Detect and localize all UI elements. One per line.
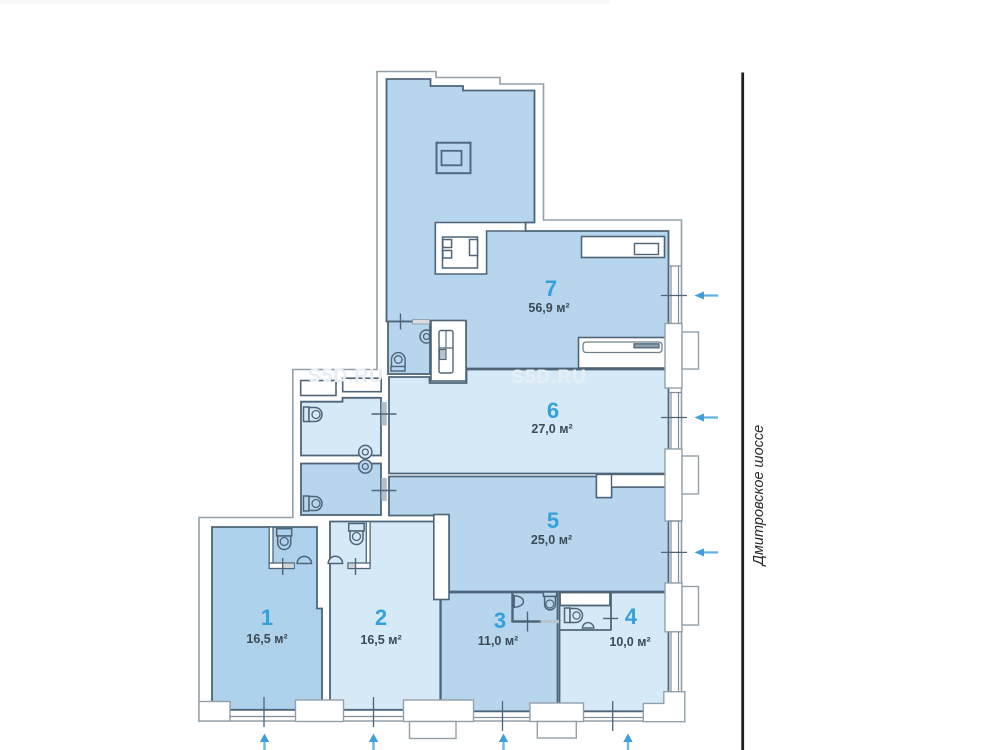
svg-text:5: 5: [547, 508, 559, 533]
svg-text:10,0 м²: 10,0 м²: [609, 635, 650, 649]
svg-text:16,5 м²: 16,5 м²: [360, 633, 401, 647]
svg-text:16,5 м²: 16,5 м²: [246, 632, 287, 646]
svg-text:7: 7: [545, 276, 557, 301]
svg-text:4: 4: [625, 604, 638, 629]
svg-text:1: 1: [261, 605, 273, 630]
svg-text:27,0 м²: 27,0 м²: [531, 422, 572, 436]
svg-text:56,9 м²: 56,9 м²: [528, 301, 569, 315]
svg-text:2: 2: [375, 605, 387, 630]
svg-text:Дмитровское шоссе: Дмитровское шоссе: [751, 425, 767, 567]
svg-text:S5D.RU: S5D.RU: [308, 366, 384, 387]
svg-text:3: 3: [494, 608, 506, 633]
svg-text:6: 6: [547, 398, 559, 423]
svg-text:S5D.RU: S5D.RU: [511, 367, 587, 388]
svg-text:11,0 м²: 11,0 м²: [478, 634, 519, 648]
svg-text:25,0 м²: 25,0 м²: [531, 533, 572, 547]
